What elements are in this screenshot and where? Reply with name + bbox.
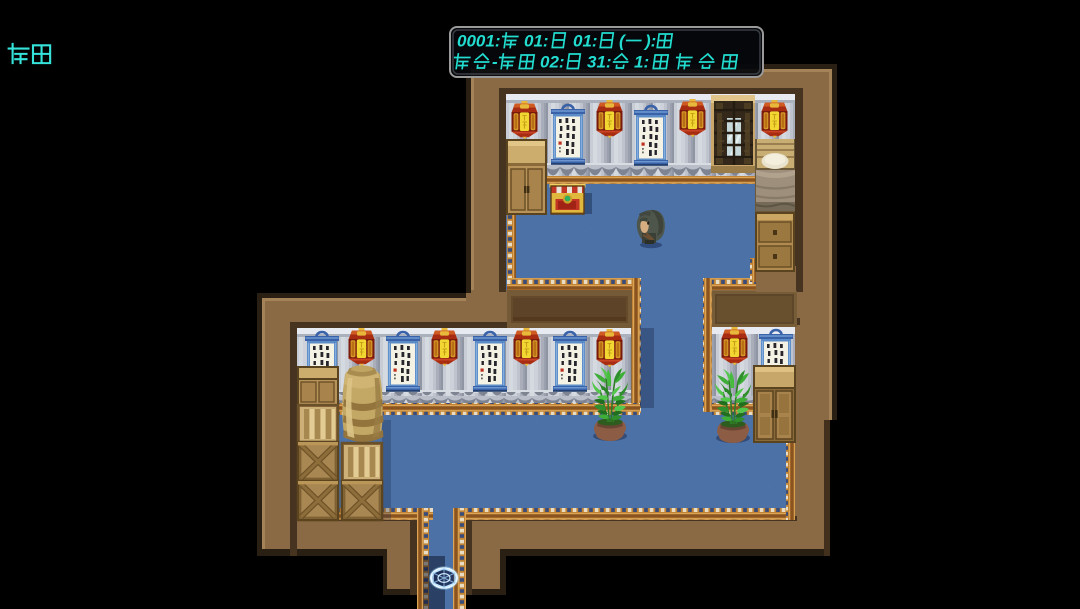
svg-text:-: - [492,53,498,72]
svg-text:02:: 02: [540,53,565,72]
svg-text:31:: 31: [587,53,612,72]
svg-text:):: ): [643,32,656,51]
svg-text:1:: 1: [634,53,649,72]
svg-text:0001:: 0001: [457,32,500,51]
svg-text:01:: 01: [573,32,598,51]
svg-text:01:: 01: [524,32,549,51]
